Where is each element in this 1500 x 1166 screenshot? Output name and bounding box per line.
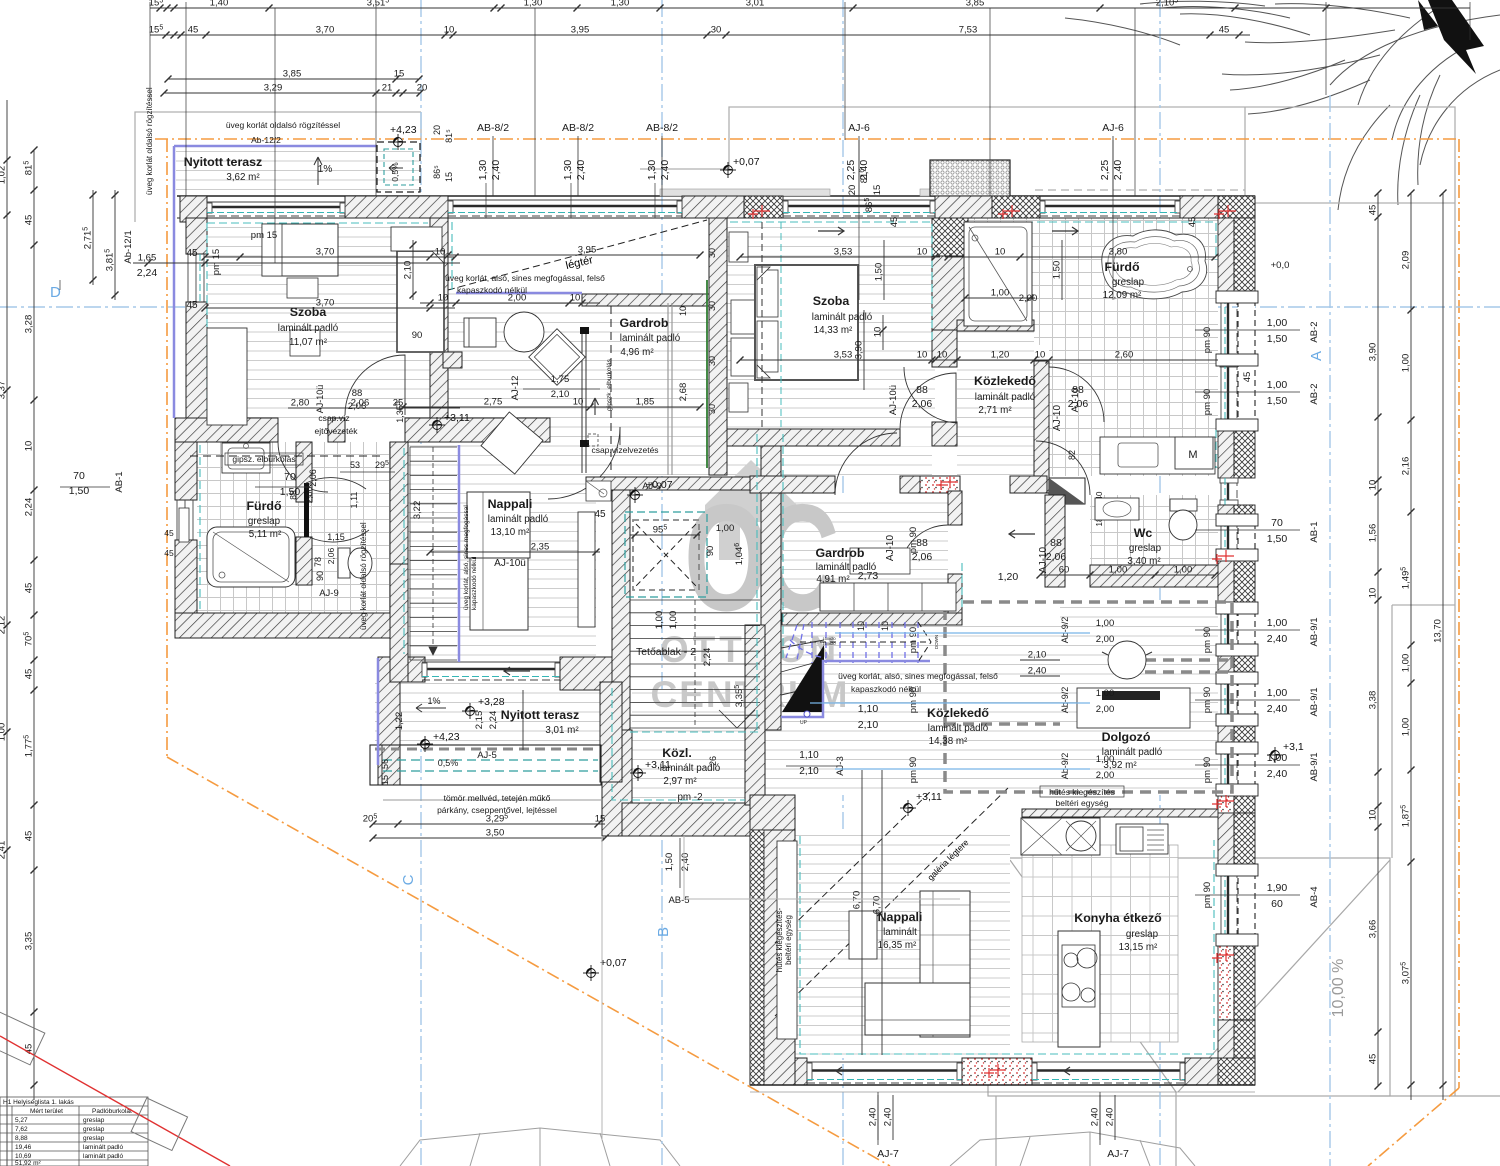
svg-text:1%: 1% (318, 164, 333, 175)
svg-text:+0,0: +0,0 (1271, 260, 1290, 271)
svg-text:2,40: 2,40 (1267, 703, 1288, 715)
svg-text:2,73: 2,73 (858, 570, 879, 582)
svg-text:2,40: 2,40 (1090, 1108, 1101, 1127)
svg-text:8,88: 8,88 (15, 1135, 28, 1142)
svg-text:2,00: 2,00 (1096, 704, 1115, 715)
svg-text:3,70: 3,70 (316, 25, 335, 36)
svg-text:3,85: 3,85 (966, 0, 985, 9)
svg-text:AJ-6: AJ-6 (848, 122, 870, 134)
svg-text:AJ-10ü: AJ-10ü (315, 385, 325, 414)
svg-text:2,10: 2,10 (551, 389, 570, 400)
svg-text:3,50: 3,50 (486, 828, 505, 839)
svg-text:AB-1: AB-1 (1309, 521, 1320, 542)
svg-text:AJ-9: AJ-9 (319, 588, 339, 599)
svg-text:Nyitott terasz: Nyitott terasz (501, 708, 580, 722)
svg-text:45: 45 (188, 25, 199, 36)
svg-text:3,01: 3,01 (746, 0, 765, 9)
svg-text:1,50: 1,50 (1267, 395, 1288, 407)
svg-text:ejtővezeték: ejtővezeték (315, 426, 359, 436)
svg-text:2,40: 2,40 (659, 160, 671, 181)
svg-text:Dolgozó: Dolgozó (1102, 730, 1151, 744)
svg-text:3,90: 3,90 (854, 341, 865, 360)
svg-text:45: 45 (1242, 372, 1253, 383)
svg-text:pm 90: pm 90 (908, 757, 919, 783)
svg-text:10,00 %: 10,00 % (1330, 959, 1347, 1018)
svg-text:Ab-9/2: Ab-9/2 (1060, 753, 1070, 780)
svg-text:AJ-10ü: AJ-10ü (494, 558, 526, 569)
svg-text:1,00: 1,00 (1174, 565, 1193, 576)
svg-text:2,40: 2,40 (575, 160, 587, 181)
svg-text:12,09 m²: 12,09 m² (1103, 290, 1142, 301)
svg-text:Konyha étkező: Konyha étkező (1074, 911, 1162, 925)
svg-text:AJ-10: AJ-10 (1070, 388, 1081, 413)
svg-text:81⁵: 81⁵ (444, 129, 454, 143)
svg-text:AB-8/2: AB-8/2 (562, 122, 594, 134)
svg-text:üveg korlát oldalsó rögzítésse: üveg korlát oldalsó rögzítéssel (359, 522, 368, 630)
svg-text:2,40: 2,40 (1112, 160, 1124, 181)
svg-text:2,06: 2,06 (304, 486, 314, 503)
svg-text:2,10: 2,10 (403, 261, 414, 280)
svg-text:Nappali: Nappali (488, 497, 533, 511)
svg-text:1,11: 1,11 (349, 492, 359, 509)
svg-text:2,09: 2,09 (1401, 251, 1412, 270)
svg-text:üveg korlát oldalsó rögzítésse: üveg korlát oldalsó rögzítéssel (145, 87, 154, 195)
svg-text:1,00: 1,00 (1401, 718, 1412, 737)
svg-text:greslap: greslap (248, 516, 281, 527)
svg-text:1,00: 1,00 (0, 723, 8, 742)
svg-text:AJ-5: AJ-5 (477, 750, 497, 761)
svg-text:3,35: 3,35 (24, 932, 35, 951)
svg-text:2,06: 2,06 (912, 398, 933, 410)
svg-text:AB-2: AB-2 (1309, 321, 1320, 342)
svg-text:AJ-7: AJ-7 (877, 1148, 899, 1160)
svg-text:Nyitott terasz: Nyitott terasz (184, 155, 263, 169)
svg-text:10: 10 (880, 621, 890, 631)
svg-text:Ab-12/1: Ab-12/1 (123, 230, 134, 263)
svg-text:AB-8/2: AB-8/2 (646, 122, 678, 134)
svg-text:10: 10 (24, 441, 35, 452)
svg-text:3,62 m²: 3,62 m² (226, 172, 260, 183)
svg-text:10: 10 (937, 350, 948, 361)
svg-text:2,06: 2,06 (351, 398, 370, 409)
svg-text:1,90: 1,90 (1267, 882, 1288, 894)
svg-text:2,00: 2,00 (1096, 634, 1115, 645)
svg-text:AB-1: AB-1 (114, 471, 125, 492)
svg-text:70: 70 (284, 471, 296, 483)
svg-text:1,10: 1,10 (858, 703, 879, 715)
svg-text:1,00: 1,00 (1096, 618, 1115, 629)
svg-text:1,00: 1,00 (1267, 317, 1288, 329)
svg-text:AJ-6: AJ-6 (1102, 122, 1124, 134)
svg-text:2,40: 2,40 (883, 1108, 894, 1127)
svg-text:3,53: 3,53 (834, 247, 853, 258)
svg-text:4,96 m²: 4,96 m² (620, 347, 654, 358)
svg-text:2,25: 2,25 (845, 160, 857, 181)
svg-text:pm 90: pm 90 (1202, 757, 1213, 783)
svg-text:10,69: 10,69 (15, 1153, 32, 1160)
svg-text:10: 10 (678, 306, 688, 316)
svg-text:2,40: 2,40 (680, 853, 691, 872)
svg-text:1,00: 1,00 (1267, 617, 1288, 629)
svg-text:AB-9/1: AB-9/1 (1309, 687, 1320, 716)
svg-text:1,30: 1,30 (477, 160, 489, 181)
svg-text:laminált padló: laminált padló (975, 392, 1036, 403)
svg-text:10: 10 (1368, 480, 1379, 491)
svg-text:Közl.: Közl. (662, 746, 692, 760)
svg-text:Gardrob: Gardrob (620, 316, 669, 330)
svg-text:45: 45 (889, 217, 900, 228)
svg-text:13,15 m²: 13,15 m² (1119, 942, 1158, 953)
svg-text:Tetőablak - 2: Tetőablak - 2 (636, 646, 696, 658)
svg-text:Ab-9/2: Ab-9/2 (1060, 617, 1070, 644)
svg-text:AJ-12: AJ-12 (510, 376, 521, 401)
svg-text:2,97 m²: 2,97 m² (663, 776, 697, 787)
svg-text:10: 10 (573, 397, 584, 408)
svg-text:10: 10 (444, 25, 455, 36)
svg-text:csap.víz: csap.víz (318, 413, 349, 423)
svg-text:hűtés kiegészítés-: hűtés kiegészítés- (775, 907, 784, 972)
svg-text:1,50: 1,50 (1052, 261, 1063, 280)
svg-text:laminált padló: laminált padló (83, 1144, 123, 1151)
svg-text:30: 30 (707, 301, 717, 311)
svg-text:3,90: 3,90 (1368, 343, 1379, 362)
svg-text:1,00: 1,00 (668, 611, 679, 630)
svg-text:3,66: 3,66 (1368, 920, 1379, 939)
svg-text:DOWN: DOWN (934, 635, 939, 649)
svg-text:2,40: 2,40 (1267, 768, 1288, 780)
svg-text:greslap: greslap (83, 1135, 105, 1142)
svg-text:Nappali: Nappali (878, 910, 923, 924)
svg-text:45: 45 (1368, 205, 1379, 216)
svg-text:45: 45 (1368, 1054, 1379, 1065)
svg-text:pm 90: pm 90 (1202, 687, 1213, 713)
svg-text:pm 90: pm 90 (1202, 627, 1213, 653)
svg-text:10: 10 (917, 350, 928, 361)
svg-text:csap.vízelvezetés: csap.vízelvezetés (591, 445, 658, 455)
svg-text:gipsz. elburkolás: gipsz. elburkolás (232, 454, 295, 464)
svg-text:pm 90: pm 90 (1202, 389, 1213, 415)
svg-text:üveg korlát, alsó, sines megfo: üveg korlát, alsó, sines megfogással, fe… (445, 273, 605, 283)
svg-text:+4,23: +4,23 (390, 124, 417, 136)
svg-text:laminált padló: laminált padló (278, 323, 339, 334)
svg-text:B: B (655, 927, 672, 937)
svg-text:2,24: 2,24 (137, 267, 158, 279)
svg-text:gipszk. elburkolás: gipszk. elburkolás (606, 358, 613, 410)
svg-text:2,75: 2,75 (484, 397, 503, 408)
svg-text:3,95: 3,95 (571, 25, 590, 36)
svg-text:2,35: 2,35 (531, 542, 550, 553)
svg-text:1,00: 1,00 (1096, 754, 1115, 765)
svg-text:13,10 m²: 13,10 m² (491, 527, 530, 538)
svg-text:laminált padló: laminált padló (83, 1153, 123, 1160)
svg-text:86⁵: 86⁵ (432, 165, 442, 179)
svg-text:1,00: 1,00 (1267, 687, 1288, 699)
svg-text:7,53: 7,53 (959, 25, 978, 36)
svg-text:1,10: 1,10 (799, 750, 819, 761)
svg-text:60: 60 (1059, 565, 1070, 576)
svg-text:1,00: 1,00 (1401, 654, 1412, 673)
svg-text:45: 45 (1187, 217, 1198, 228)
svg-text:1,30: 1,30 (562, 160, 574, 181)
svg-text:pm 15: pm 15 (211, 249, 222, 275)
svg-text:1,02: 1,02 (0, 166, 8, 185)
svg-text:laminált padló: laminált padló (928, 723, 989, 734)
svg-text:laminált padló: laminált padló (620, 333, 681, 344)
svg-text:160x20: 160x20 (822, 641, 836, 646)
svg-text:2,06: 2,06 (912, 551, 933, 563)
svg-text:kapaszkodó nélkül: kapaszkodó nélkül (471, 556, 478, 610)
svg-text:1,15: 1,15 (327, 532, 345, 542)
svg-text:30: 30 (707, 248, 717, 258)
svg-text:90: 90 (315, 571, 325, 581)
svg-text:16,35 m²: 16,35 m² (878, 940, 917, 951)
svg-text:11,07 m²: 11,07 m² (289, 337, 328, 348)
svg-text:2,12: 2,12 (0, 616, 8, 635)
svg-text:10: 10 (873, 327, 884, 338)
svg-text:45: 45 (24, 215, 35, 226)
svg-text:51,92 m²: 51,92 m² (15, 1160, 41, 1166)
svg-text:1,22: 1,22 (394, 712, 405, 731)
svg-text:2,10: 2,10 (858, 719, 879, 731)
svg-text:Közlekedő: Közlekedő (974, 374, 1036, 388)
svg-text:14,33 m²: 14,33 m² (814, 325, 853, 336)
svg-text:45: 45 (24, 669, 35, 680)
svg-text:+4,23: +4,23 (433, 731, 460, 743)
svg-text:1,00: 1,00 (654, 611, 665, 630)
svg-text:3,37: 3,37 (0, 381, 8, 400)
svg-text:+3,11: +3,11 (444, 412, 470, 424)
svg-text:Padlóburkolat: Padlóburkolat (92, 1108, 132, 1115)
svg-text:30: 30 (707, 356, 717, 366)
svg-text:15: 15 (380, 775, 390, 785)
svg-text:45: 45 (594, 509, 606, 520)
svg-text:Gardrob: Gardrob (816, 546, 865, 560)
svg-text:2,00: 2,00 (508, 293, 527, 304)
svg-text:1,00: 1,00 (1096, 688, 1115, 699)
svg-text:H1 Helyiséglista 1. lakás: H1 Helyiséglista 1. lakás (3, 1099, 75, 1106)
svg-text:greslap: greslap (83, 1126, 105, 1133)
svg-text:M: M (1188, 449, 1197, 461)
svg-text:2,24: 2,24 (488, 711, 499, 730)
svg-text:beltéri egység: beltéri egység (1056, 798, 1109, 808)
svg-text:1,50: 1,50 (664, 853, 675, 872)
svg-text:laminált: laminált (883, 927, 917, 938)
svg-text:üveg korlát, alsó, sines megfo: üveg korlát, alsó, sines megfogással (463, 505, 470, 610)
svg-text:14,38 m²: 14,38 m² (929, 736, 968, 747)
svg-text:AJ-9: AJ-9 (642, 481, 662, 492)
svg-text:1%: 1% (427, 696, 440, 706)
svg-text:pm -2: pm -2 (677, 792, 702, 803)
svg-text:7,62: 7,62 (15, 1126, 28, 1133)
svg-text:70: 70 (73, 470, 85, 482)
svg-text:1,00: 1,00 (991, 288, 1010, 299)
svg-text:13,70: 13,70 (1433, 619, 1444, 643)
svg-text:+0,07: +0,07 (733, 156, 760, 168)
svg-text:Wc: Wc (1134, 526, 1153, 540)
svg-text:2,10: 2,10 (1028, 650, 1047, 661)
svg-text:+3,11: +3,11 (916, 791, 942, 803)
svg-text:3,01 m²: 3,01 m² (545, 725, 579, 736)
svg-text:21: 21 (382, 83, 393, 94)
svg-text:2,06: 2,06 (326, 547, 336, 564)
svg-text:AB-2: AB-2 (1309, 383, 1320, 404)
svg-text:6,70: 6,70 (852, 891, 863, 910)
svg-text:1,20: 1,20 (991, 350, 1010, 361)
svg-text:1,00: 1,00 (1267, 752, 1288, 764)
svg-text:2,15: 2,15 (474, 711, 485, 730)
svg-text:1,30: 1,30 (611, 0, 630, 9)
svg-text:1,30: 1,30 (524, 0, 543, 9)
svg-text:Ab-12/2: Ab-12/2 (251, 135, 281, 145)
svg-text:3,70: 3,70 (316, 247, 335, 258)
svg-text:30: 30 (707, 404, 717, 414)
svg-text:2,40: 2,40 (490, 160, 502, 181)
svg-text:C: C (400, 874, 417, 885)
svg-text:AJ-7: AJ-7 (1107, 1148, 1129, 1160)
svg-text:1,50: 1,50 (280, 486, 301, 498)
svg-text:2,24: 2,24 (702, 648, 713, 667)
svg-text:10: 10 (1368, 810, 1379, 821)
svg-text:AJ-10ü: AJ-10ü (888, 385, 899, 415)
svg-text:2,41: 2,41 (0, 841, 8, 860)
svg-text:Közlekedő: Közlekedő (927, 706, 989, 720)
svg-text:1,00: 1,00 (716, 523, 735, 534)
svg-text:greslap: greslap (1112, 277, 1145, 288)
svg-text:4,91 m²: 4,91 m² (816, 574, 850, 585)
svg-text:1,85: 1,85 (636, 397, 655, 408)
svg-text:1,40: 1,40 (210, 0, 229, 9)
svg-text:53: 53 (350, 460, 360, 470)
svg-text:20: 20 (417, 83, 428, 94)
svg-text:15: 15 (394, 69, 405, 80)
svg-text:15: 15 (872, 185, 883, 196)
svg-text:88: 88 (1050, 537, 1062, 549)
svg-text:greslap: greslap (83, 1117, 105, 1124)
svg-text:Fürdő: Fürdő (1104, 260, 1140, 274)
svg-text:2,06: 2,06 (308, 469, 318, 487)
svg-text:45: 45 (24, 583, 35, 594)
svg-text:5,27: 5,27 (15, 1117, 28, 1124)
svg-text:10: 10 (435, 247, 446, 258)
svg-text:AJ-10: AJ-10 (885, 535, 896, 562)
svg-text:0,5%: 0,5% (390, 162, 400, 182)
svg-text:Ab-9/2: Ab-9/2 (1060, 687, 1070, 714)
svg-text:2,60: 2,60 (1115, 350, 1134, 361)
svg-text:2,16: 2,16 (1401, 457, 1412, 476)
svg-text:1,75: 1,75 (551, 374, 570, 385)
svg-text:45: 45 (1219, 25, 1230, 36)
svg-text:2,68: 2,68 (678, 383, 689, 402)
svg-text:AB-9/1: AB-9/1 (1309, 617, 1320, 646)
svg-text:3,29: 3,29 (264, 83, 283, 94)
svg-text:1,56: 1,56 (1368, 524, 1379, 543)
svg-text:greslap: greslap (1129, 543, 1162, 554)
svg-text:2,00: 2,00 (1096, 770, 1115, 781)
svg-text:pm 90: pm 90 (908, 627, 919, 653)
svg-text:78: 78 (313, 557, 323, 567)
svg-text:2,80: 2,80 (291, 398, 310, 409)
svg-text:3,53: 3,53 (834, 350, 853, 361)
svg-text:Fürdő: Fürdő (246, 499, 282, 513)
svg-text:Szoba: Szoba (813, 294, 850, 308)
svg-text:1,50: 1,50 (874, 263, 885, 282)
svg-text:üveg korlát oldalsó rögzítésse: üveg korlát oldalsó rögzítéssel (226, 120, 340, 130)
svg-text:10: 10 (570, 293, 581, 304)
svg-text:1,50: 1,50 (1267, 333, 1288, 345)
svg-text:1,30: 1,30 (646, 160, 658, 181)
svg-text:3,38: 3,38 (1368, 691, 1379, 710)
svg-text:20: 20 (847, 185, 858, 196)
svg-text:15: 15 (444, 172, 454, 182)
svg-text:45: 45 (164, 528, 174, 538)
svg-text:19,46: 19,46 (15, 1144, 32, 1151)
svg-text:88: 88 (916, 537, 928, 549)
svg-text:2,24: 2,24 (24, 498, 35, 517)
svg-text:45: 45 (164, 548, 174, 558)
svg-text:2,40: 2,40 (1105, 1108, 1116, 1127)
svg-text:3,95: 3,95 (578, 245, 597, 256)
svg-text:D: D (50, 284, 61, 301)
svg-text:15: 15 (595, 814, 606, 825)
svg-text:3,28: 3,28 (24, 315, 35, 334)
svg-text:3,80: 3,80 (1109, 247, 1128, 258)
svg-text:30: 30 (711, 25, 722, 36)
svg-text:45: 45 (186, 300, 198, 311)
svg-text:3,70: 3,70 (316, 298, 335, 309)
svg-text:AB-5: AB-5 (668, 895, 689, 906)
svg-text:1,65: 1,65 (138, 253, 157, 264)
svg-text:90: 90 (412, 330, 423, 341)
svg-text:AB-4: AB-4 (1309, 886, 1320, 907)
svg-text:tömör mellvéd, tetején műkő: tömör mellvéd, tetején műkő (444, 793, 551, 803)
svg-text:88: 88 (916, 384, 928, 396)
svg-text:1,50: 1,50 (1267, 533, 1288, 545)
svg-text:2,40: 2,40 (868, 1108, 879, 1127)
svg-text:AB-8/2: AB-8/2 (477, 122, 509, 134)
svg-text:2,71 m²: 2,71 m² (978, 405, 1012, 416)
svg-text:3,85: 3,85 (283, 69, 302, 80)
svg-text:pm 90: pm 90 (1202, 327, 1213, 353)
svg-text:10: 10 (1368, 588, 1379, 599)
svg-text:AJ-10: AJ-10 (1052, 405, 1063, 432)
svg-text:pm 90: pm 90 (908, 687, 919, 713)
svg-text:45: 45 (186, 248, 198, 259)
svg-text:greslap: greslap (1126, 929, 1159, 940)
svg-text:1,00: 1,00 (1109, 565, 1128, 576)
svg-text:56: 56 (380, 759, 390, 769)
svg-text:10: 10 (438, 293, 449, 304)
svg-text:pm 15: pm 15 (251, 230, 277, 241)
svg-text:+0,07: +0,07 (600, 957, 627, 969)
svg-text:3,40 m²: 3,40 m² (1127, 556, 1161, 567)
svg-text:2,10: 2,10 (799, 766, 819, 777)
svg-text:2,06: 2,06 (1046, 551, 1067, 563)
svg-text:10: 10 (1035, 350, 1046, 361)
svg-text:1,00: 1,00 (1267, 379, 1288, 391)
svg-text:beltéri egység: beltéri egység (784, 915, 793, 965)
svg-text:3,22: 3,22 (412, 501, 423, 520)
svg-text:2,40: 2,40 (1267, 633, 1288, 645)
svg-text:26: 26 (708, 756, 718, 766)
svg-text:pm 90: pm 90 (1202, 882, 1213, 908)
svg-text:1,00: 1,00 (1401, 354, 1412, 373)
svg-text:10: 10 (995, 247, 1006, 258)
svg-text:82: 82 (1067, 450, 1077, 460)
svg-text:5,11 m²: 5,11 m² (249, 529, 282, 540)
svg-text:hűtés kiegészítés: hűtés kiegészítés (1049, 787, 1115, 797)
svg-text:90: 90 (705, 546, 716, 557)
svg-text:2,00: 2,00 (1019, 293, 1038, 304)
